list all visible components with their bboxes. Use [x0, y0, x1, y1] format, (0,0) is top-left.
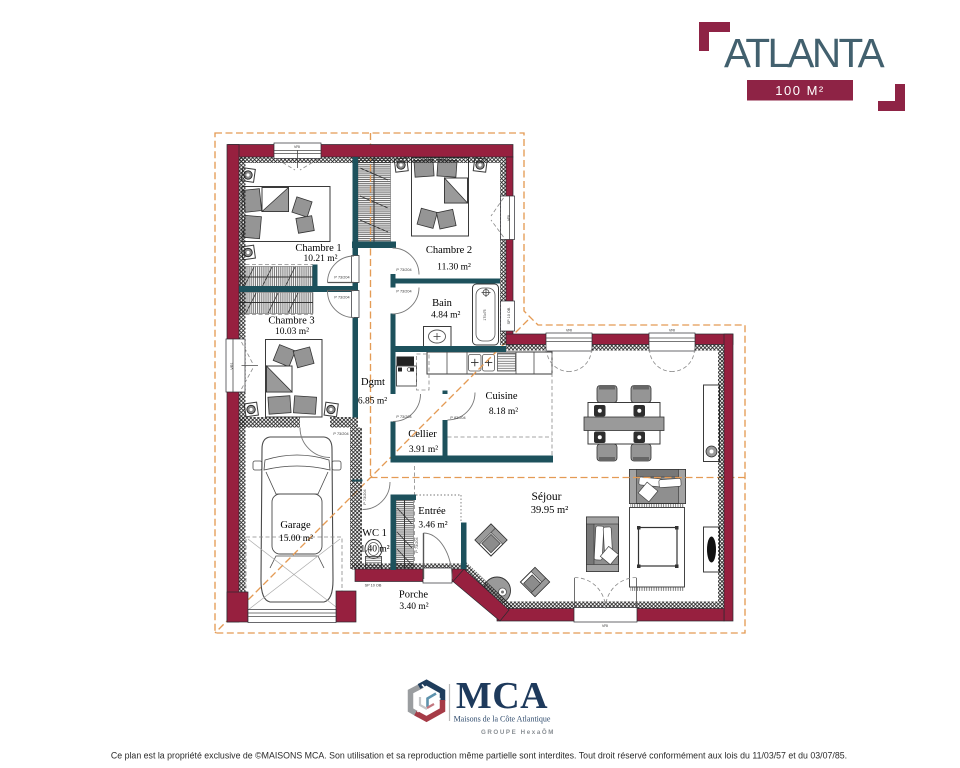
svg-text:VRI: VRI: [669, 329, 675, 333]
svg-text:15.00 m²: 15.00 m²: [279, 534, 313, 544]
svg-text:3.91 m²: 3.91 m²: [409, 445, 438, 455]
svg-text:Cuisine: Cuisine: [485, 391, 517, 402]
svg-text:P 73/204: P 73/204: [333, 432, 348, 436]
svg-text:VR1: VR1: [230, 362, 234, 369]
svg-text:WC 1: WC 1: [362, 528, 387, 539]
svg-text:Chambre 2: Chambre 2: [426, 245, 472, 256]
svg-text:ATLANTA: ATLANTA: [724, 30, 885, 76]
svg-text:VRI: VRI: [294, 145, 300, 149]
svg-text:P 73/204: P 73/204: [334, 296, 349, 300]
svg-text:8.18 m²: 8.18 m²: [489, 407, 518, 417]
svg-text:P 73/204: P 73/204: [334, 276, 349, 280]
svg-text:3.46 m²: 3.46 m²: [418, 521, 447, 531]
svg-text:4.84 m²: 4.84 m²: [431, 311, 460, 321]
svg-text:11.30 m²: 11.30 m²: [437, 263, 471, 273]
svg-text:Entrée: Entrée: [418, 506, 446, 517]
svg-text:VRI: VRI: [602, 624, 608, 628]
svg-text:GROUPE HexaŌM: GROUPE HexaŌM: [481, 729, 555, 736]
svg-text:VRI: VRI: [507, 215, 511, 221]
svg-text:Chambre 1: Chambre 1: [295, 243, 341, 254]
svg-text:P 73/204: P 73/204: [396, 415, 411, 419]
svg-text:VRI: VRI: [566, 329, 572, 333]
svg-text:6.85 m²: 6.85 m²: [358, 397, 387, 407]
svg-text:MCA: MCA: [456, 675, 548, 717]
svg-text:Dgmt: Dgmt: [361, 377, 385, 388]
svg-text:1.40 m²: 1.40 m²: [360, 545, 389, 555]
svg-text:3.40 m²: 3.40 m²: [399, 602, 428, 612]
svg-text:Cellier: Cellier: [408, 429, 437, 440]
svg-text:P 83/204: P 83/204: [450, 416, 465, 420]
svg-text:Porche: Porche: [399, 590, 428, 601]
svg-text:SP 10 OB: SP 10 OB: [507, 307, 511, 324]
svg-text:P 73/204: P 73/204: [396, 290, 411, 294]
svg-text:Bain: Bain: [432, 298, 453, 309]
svg-text:Maisons de la Côte Atlantique: Maisons de la Côte Atlantique: [454, 715, 551, 724]
svg-text:Chambre 3: Chambre 3: [268, 316, 314, 327]
svg-text:P 73/204: P 73/204: [396, 268, 411, 272]
svg-text:P 73/204: P 73/204: [363, 489, 367, 504]
svg-text:SP 10 OB: SP 10 OB: [365, 584, 382, 588]
svg-text:10.03 m²: 10.03 m²: [275, 327, 309, 337]
svg-text:100 M²: 100 M²: [775, 83, 824, 98]
svg-text:Séjour: Séjour: [531, 491, 561, 503]
svg-text:170x75: 170x75: [483, 309, 487, 320]
svg-text:39.95 m²: 39.95 m²: [531, 505, 569, 516]
svg-text:Garage: Garage: [280, 520, 311, 531]
svg-text:Ce plan est la propriété exclu: Ce plan est la propriété exclusive de ©M…: [111, 751, 847, 761]
svg-text:10.21 m²: 10.21 m²: [304, 254, 338, 264]
svg-text:P 73/204: P 73/204: [415, 537, 419, 552]
